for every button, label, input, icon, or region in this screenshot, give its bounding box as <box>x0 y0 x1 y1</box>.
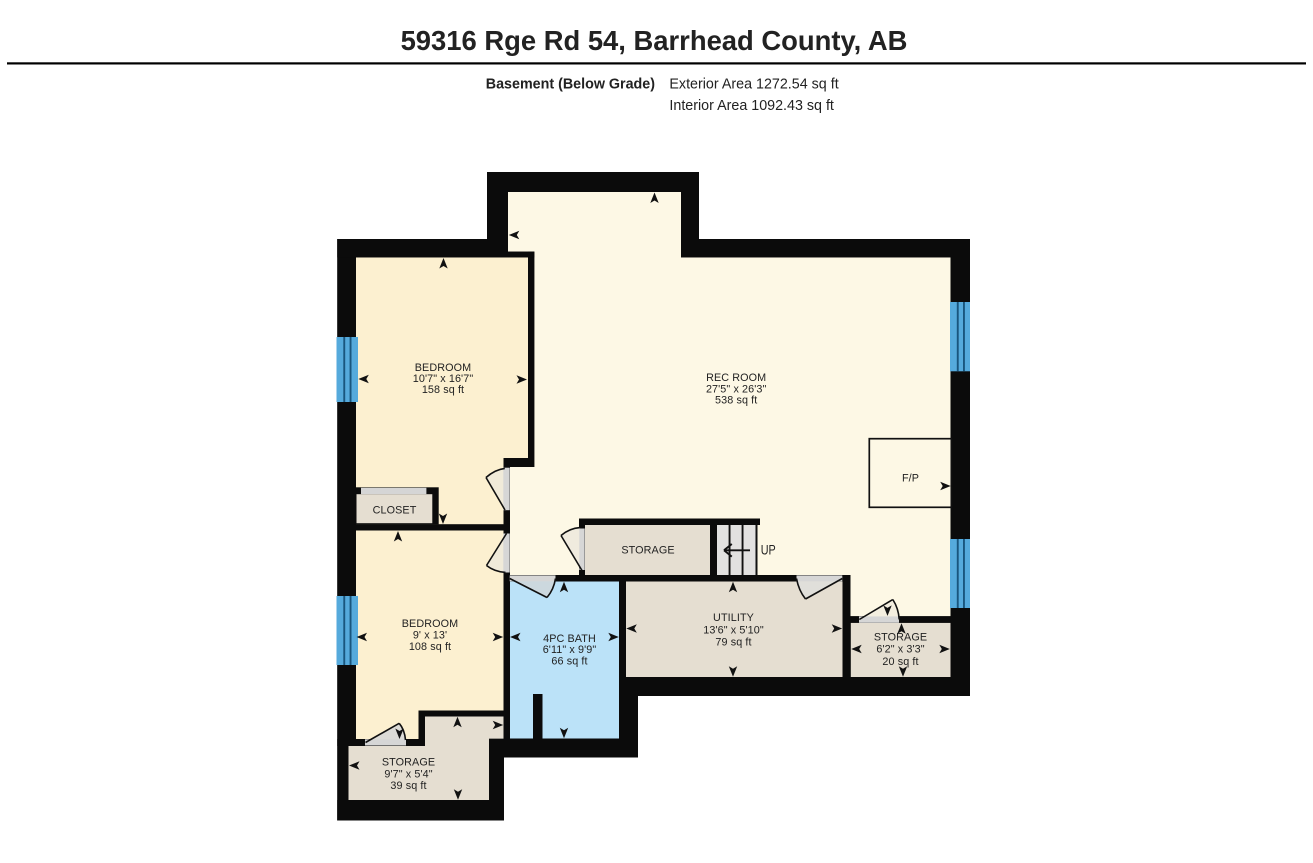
svg-text:20 sq ft: 20 sq ft <box>882 656 918 668</box>
svg-text:59316 Rge Rd 54, Barrhead Coun: 59316 Rge Rd 54, Barrhead County, AB <box>401 25 908 56</box>
svg-text:F/P: F/P <box>902 473 919 485</box>
svg-text:9' x 13': 9' x 13' <box>413 629 447 641</box>
svg-text:REC ROOM: REC ROOM <box>706 372 766 384</box>
svg-text:108 sq ft: 108 sq ft <box>409 641 451 653</box>
svg-text:158 sq ft: 158 sq ft <box>422 384 464 396</box>
svg-text:538 sq ft: 538 sq ft <box>715 394 757 406</box>
svg-text:6'2" x 3'3": 6'2" x 3'3" <box>876 644 924 656</box>
svg-text:Basement (Below Grade): Basement (Below Grade) <box>486 76 655 92</box>
svg-text:STORAGE: STORAGE <box>382 757 435 769</box>
svg-text:UP: UP <box>761 542 776 557</box>
svg-text:UTILITY: UTILITY <box>713 612 754 624</box>
svg-text:9'7" x 5'4": 9'7" x 5'4" <box>384 768 432 780</box>
svg-text:STORAGE: STORAGE <box>874 632 927 644</box>
svg-text:39 sq ft: 39 sq ft <box>390 780 426 792</box>
svg-text:Exterior Area 1272.54 sq ft: Exterior Area 1272.54 sq ft <box>669 76 838 92</box>
svg-text:CLOSET: CLOSET <box>373 505 417 517</box>
svg-text:BEDROOM: BEDROOM <box>402 618 459 630</box>
svg-text:79 sq ft: 79 sq ft <box>715 637 751 649</box>
svg-text:66 sq ft: 66 sq ft <box>551 655 587 667</box>
svg-text:STORAGE: STORAGE <box>621 545 674 557</box>
svg-text:13'6" x 5'10": 13'6" x 5'10" <box>703 625 764 637</box>
svg-text:6'11" x 9'9": 6'11" x 9'9" <box>543 644 597 656</box>
svg-text:Interior Area 1092.43 sq ft: Interior Area 1092.43 sq ft <box>669 98 834 114</box>
